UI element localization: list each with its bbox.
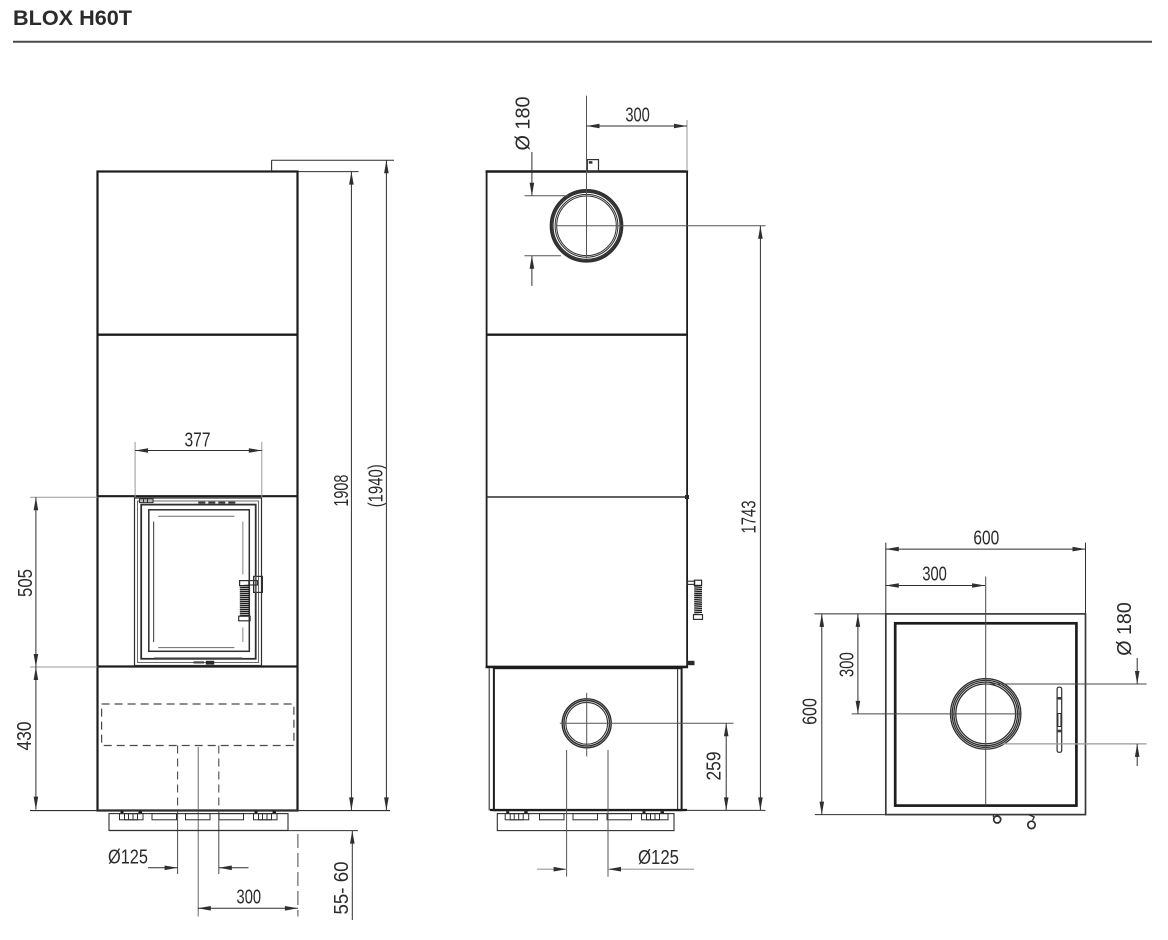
svg-text:Ø125: Ø125 [108,847,148,869]
svg-text:55- 60: 55- 60 [331,862,353,915]
svg-text:1743: 1743 [739,501,761,534]
svg-text:600: 600 [973,528,999,550]
svg-text:1908: 1908 [331,475,353,507]
svg-text:300: 300 [237,887,262,909]
svg-text:(1940): (1940) [365,464,387,507]
svg-text:300: 300 [922,563,947,585]
svg-text:300: 300 [837,652,859,677]
svg-text:BLOX H60T: BLOX H60T [13,6,132,30]
svg-text:259: 259 [704,752,726,781]
svg-text:377: 377 [185,429,211,451]
svg-text:600: 600 [800,698,822,725]
svg-text:Ø125: Ø125 [638,847,679,869]
svg-text:Ø 180: Ø 180 [1114,602,1136,656]
svg-text:505: 505 [15,569,37,597]
svg-text:300: 300 [625,105,650,127]
svg-text:Ø 180: Ø 180 [513,97,535,151]
svg-text:430: 430 [14,722,36,751]
